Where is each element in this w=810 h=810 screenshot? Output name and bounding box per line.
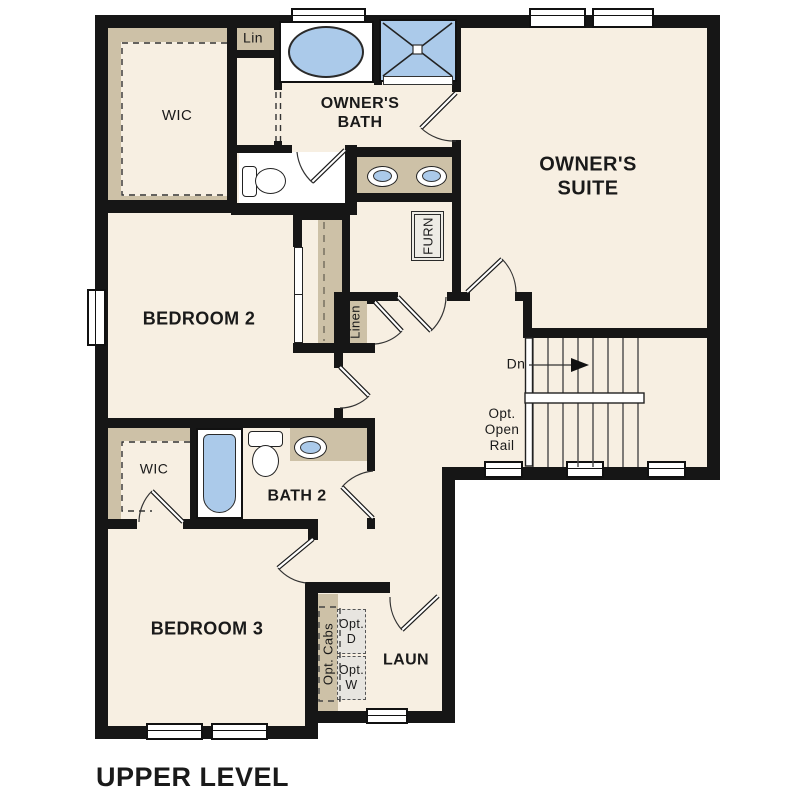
bedroom2-closet-door-2: [294, 294, 303, 343]
wall-bedroom3-door-stub: [308, 529, 318, 540]
wall-laundry-top: [305, 582, 390, 593]
wall-hall-top: [334, 292, 398, 301]
owners-shower: [379, 19, 457, 82]
wall-bath2-top: [95, 418, 375, 428]
bath2-sink-basin: [300, 441, 321, 454]
window-owners-suite-1: [529, 8, 586, 28]
wic-bedroom3-floor: [121, 441, 190, 519]
linen-upper-label: Lin: [243, 30, 263, 47]
wall-bath2-bottom-right: [183, 519, 318, 529]
window-stair-wall-1: [484, 461, 523, 478]
opt-dryer-box: Opt. D: [337, 609, 366, 654]
wall-bedroom2-closet-stub-top: [293, 220, 302, 247]
window-pane: [531, 15, 584, 16]
wall-wic-owner-bottom: [95, 200, 237, 213]
linen-hall-label: Linen: [347, 305, 362, 339]
owners-sink-right-basin: [422, 170, 441, 182]
wall-exterior-right: [707, 15, 720, 480]
wall-bedroom2-east-upper: [334, 348, 343, 368]
owners-sink-left-basin: [373, 170, 392, 182]
furnace-label: FURN: [420, 217, 435, 255]
window-pane: [594, 15, 652, 16]
opt-open-rail-label: Opt. Open Rail: [485, 406, 520, 454]
window-pane: [368, 715, 406, 716]
window-bedroom2-left: [87, 289, 106, 346]
wall-hall-top-right: [447, 292, 470, 301]
opt-cabs-label: Opt. Cabs: [320, 623, 335, 685]
opt-dryer-label: Opt. D: [339, 617, 364, 647]
plan-title: UPPER LEVEL: [96, 762, 289, 793]
window-owners-suite-2: [592, 8, 654, 28]
wall-toilet-room-top: [234, 145, 292, 153]
owners-shower-curb: [383, 76, 453, 85]
wall-exterior-lower-right: [442, 467, 455, 723]
bath2-tub: [203, 434, 236, 513]
window-bedroom3-2: [211, 723, 268, 740]
wall-vanity-top: [357, 147, 452, 157]
wall-bedroom3-laundry-divider: [305, 582, 318, 739]
window-pane: [568, 468, 602, 469]
wall-linen-left: [334, 292, 343, 352]
opt-washer-box: Opt. W: [337, 656, 366, 700]
stairs-down-label: Dn: [507, 356, 526, 373]
owners-toilet-bowl: [255, 168, 286, 194]
window-pane: [649, 468, 684, 469]
wall-bath2-right-lower: [367, 518, 375, 529]
bath2-label: BATH 2: [268, 488, 327, 507]
wall-exterior-left: [95, 15, 108, 739]
owners-suite-label: OWNER'S SUITE: [539, 153, 637, 200]
wall-bath2-bottom-left: [95, 519, 137, 529]
bedroom2-closet-door-1: [294, 247, 303, 296]
owners-bath-label: OWNER'S BATH: [321, 95, 400, 133]
window-laundry: [366, 708, 408, 724]
window-pane: [95, 291, 96, 344]
laundry-label: LAUN: [383, 652, 429, 671]
bedroom2-label: BEDROOM 2: [143, 308, 256, 329]
window-pane: [148, 730, 201, 731]
wic-owner-label: WIC: [162, 107, 192, 125]
wall-linen-right-stub: [367, 292, 375, 304]
wall-exterior-bedroom3-bottom: [95, 726, 318, 739]
window-pane: [213, 730, 266, 731]
window-stair-wall-3: [647, 461, 686, 478]
window-stair-wall-2: [566, 461, 604, 478]
bedroom3-label: BEDROOM 3: [151, 618, 264, 639]
wall-wic-owner-right: [227, 15, 237, 210]
window-pane: [293, 15, 364, 16]
wic-bedroom3-label: WIC: [140, 461, 168, 478]
wall-suite-bath-lower: [452, 140, 461, 293]
wall-bath2-right-upper: [367, 424, 375, 471]
floor-plan: Opt. D Opt. W: [0, 0, 810, 810]
wall-stair-top: [523, 328, 720, 338]
owners-tub: [288, 26, 364, 78]
bath2-toilet-bowl: [252, 445, 279, 477]
window-pane: [486, 468, 521, 469]
opt-washer-label: Opt. W: [339, 663, 364, 693]
wall-vanity-bottom: [357, 193, 452, 202]
window-bedroom3-1: [146, 723, 203, 740]
wall-toilet-room-right: [345, 145, 357, 215]
